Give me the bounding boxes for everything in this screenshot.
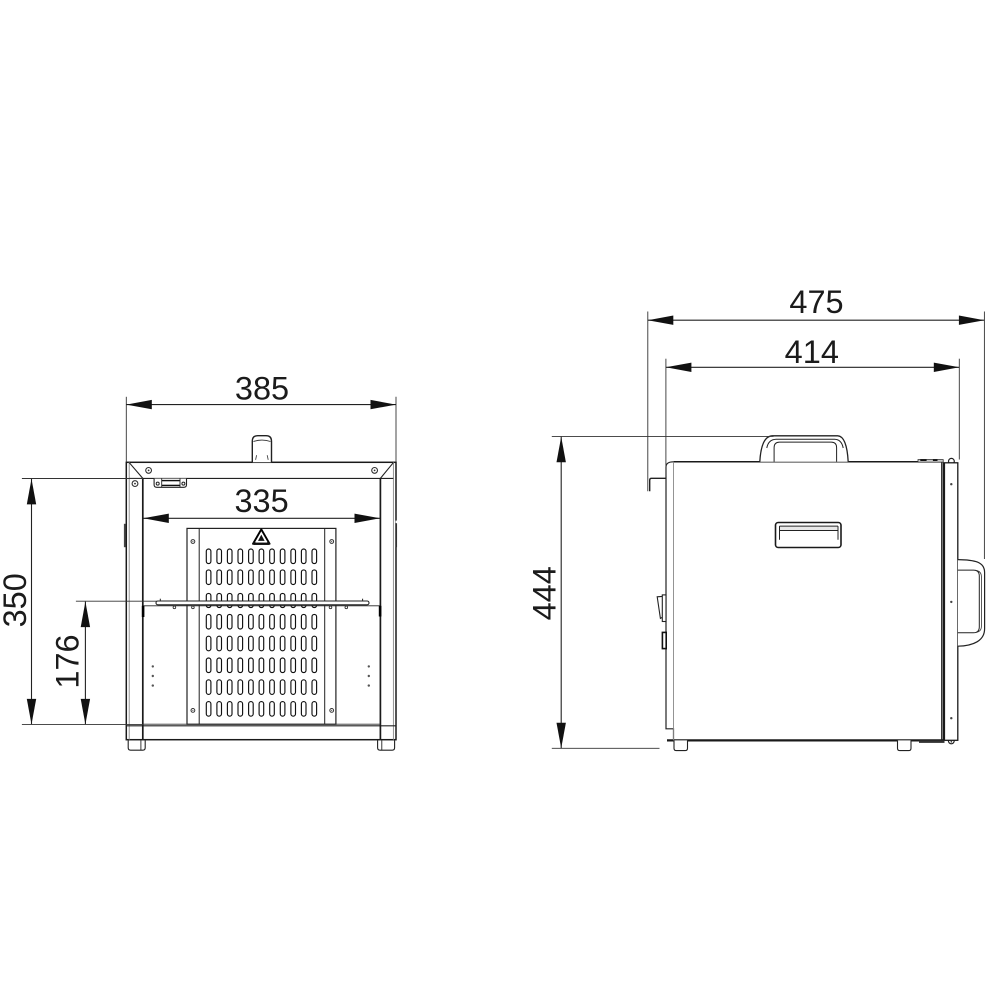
svg-text:414: 414 <box>785 334 839 370</box>
svg-text:350: 350 <box>0 573 33 627</box>
svg-text:335: 335 <box>234 483 288 519</box>
svg-text:176: 176 <box>49 634 85 688</box>
svg-text:444: 444 <box>527 566 563 620</box>
svg-text:385: 385 <box>235 370 289 406</box>
svg-text:475: 475 <box>789 284 843 320</box>
